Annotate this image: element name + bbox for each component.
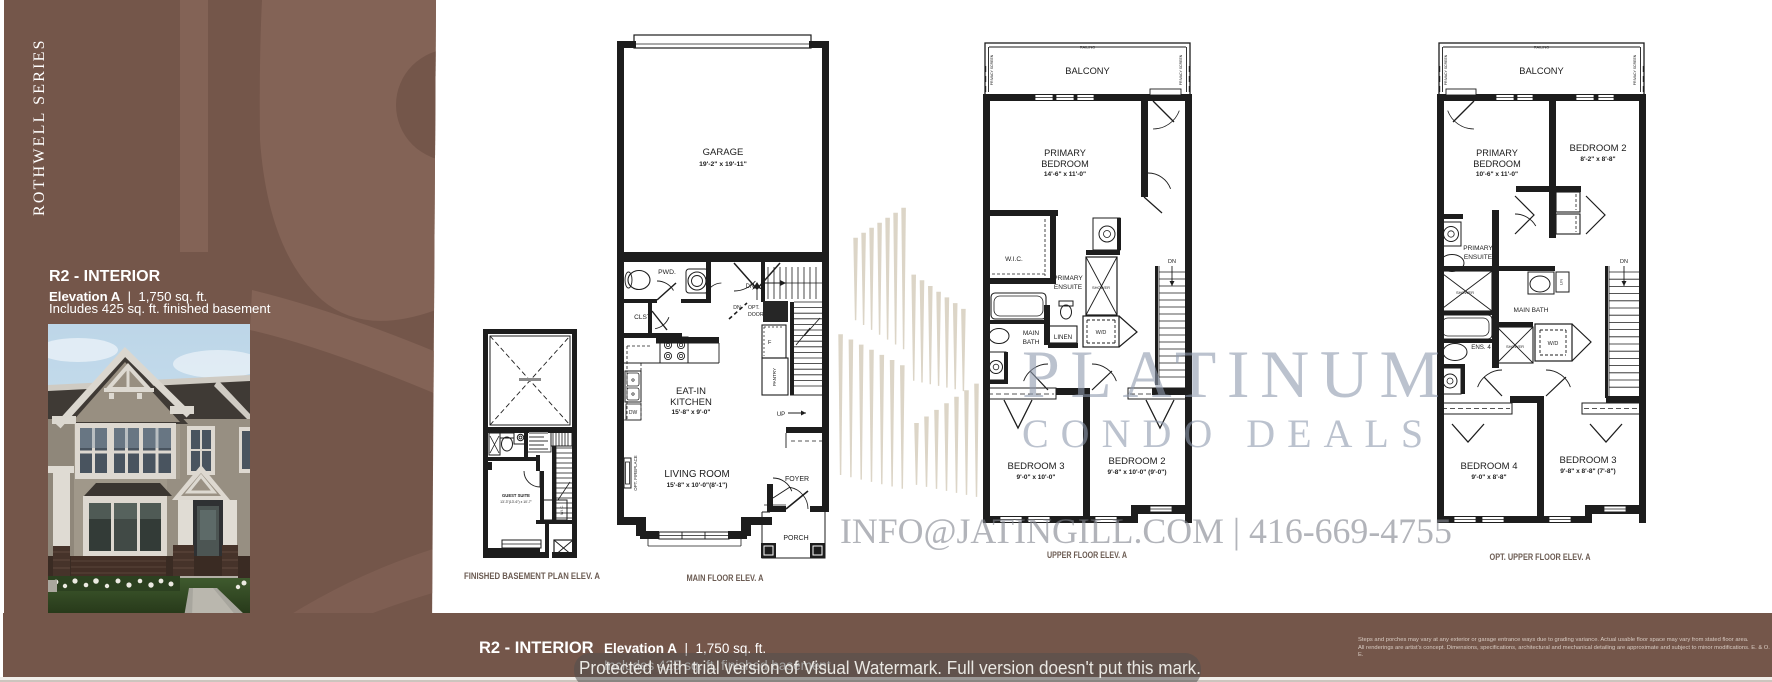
svg-text:CONDO DEALS: CONDO DEALS <box>1022 411 1435 456</box>
svg-text:INFO@JATINGILL.COM | 416-669-4: INFO@JATINGILL.COM | 416-669-4755 <box>840 511 1452 551</box>
svg-text:PLATINUM: PLATINUM <box>1022 336 1451 412</box>
